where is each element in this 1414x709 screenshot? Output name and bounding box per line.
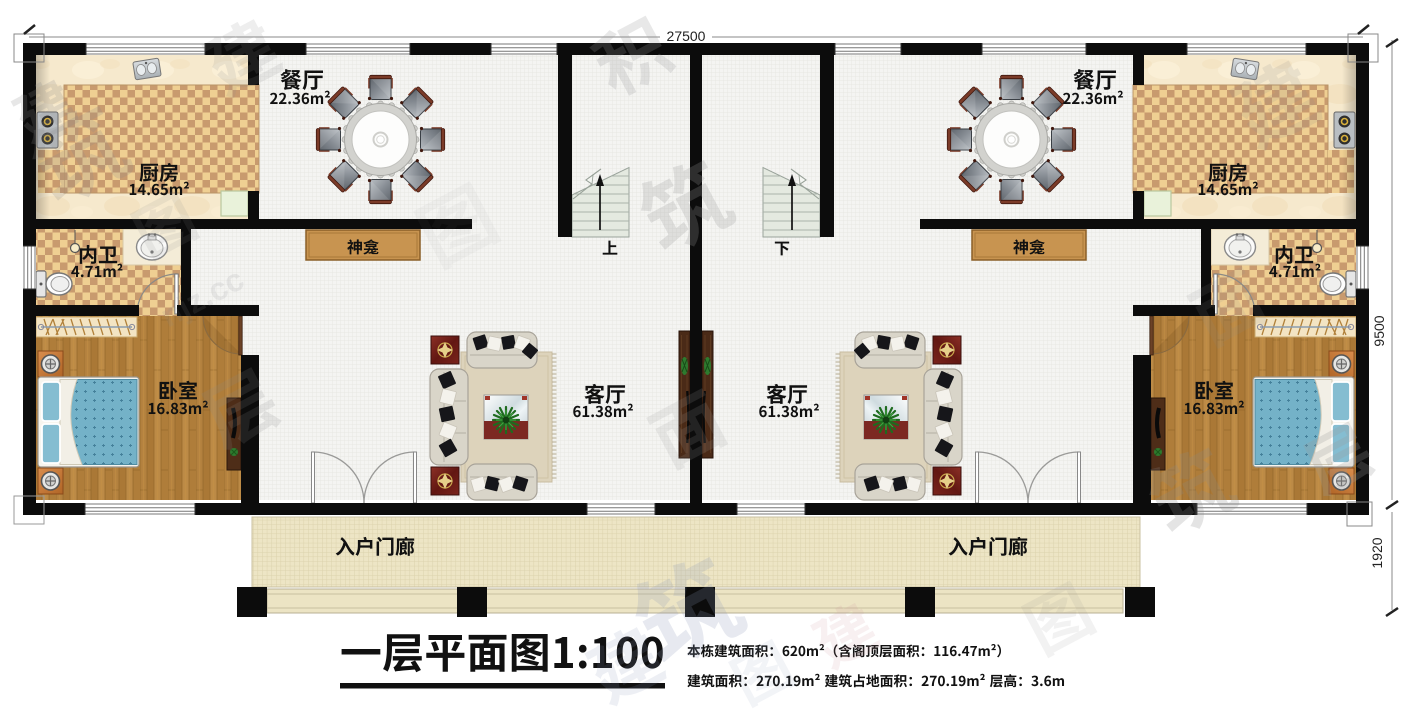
svg-text:9500: 9500 (1371, 315, 1387, 346)
svg-text:27500: 27500 (667, 28, 706, 44)
svg-text:1920: 1920 (1369, 537, 1385, 568)
